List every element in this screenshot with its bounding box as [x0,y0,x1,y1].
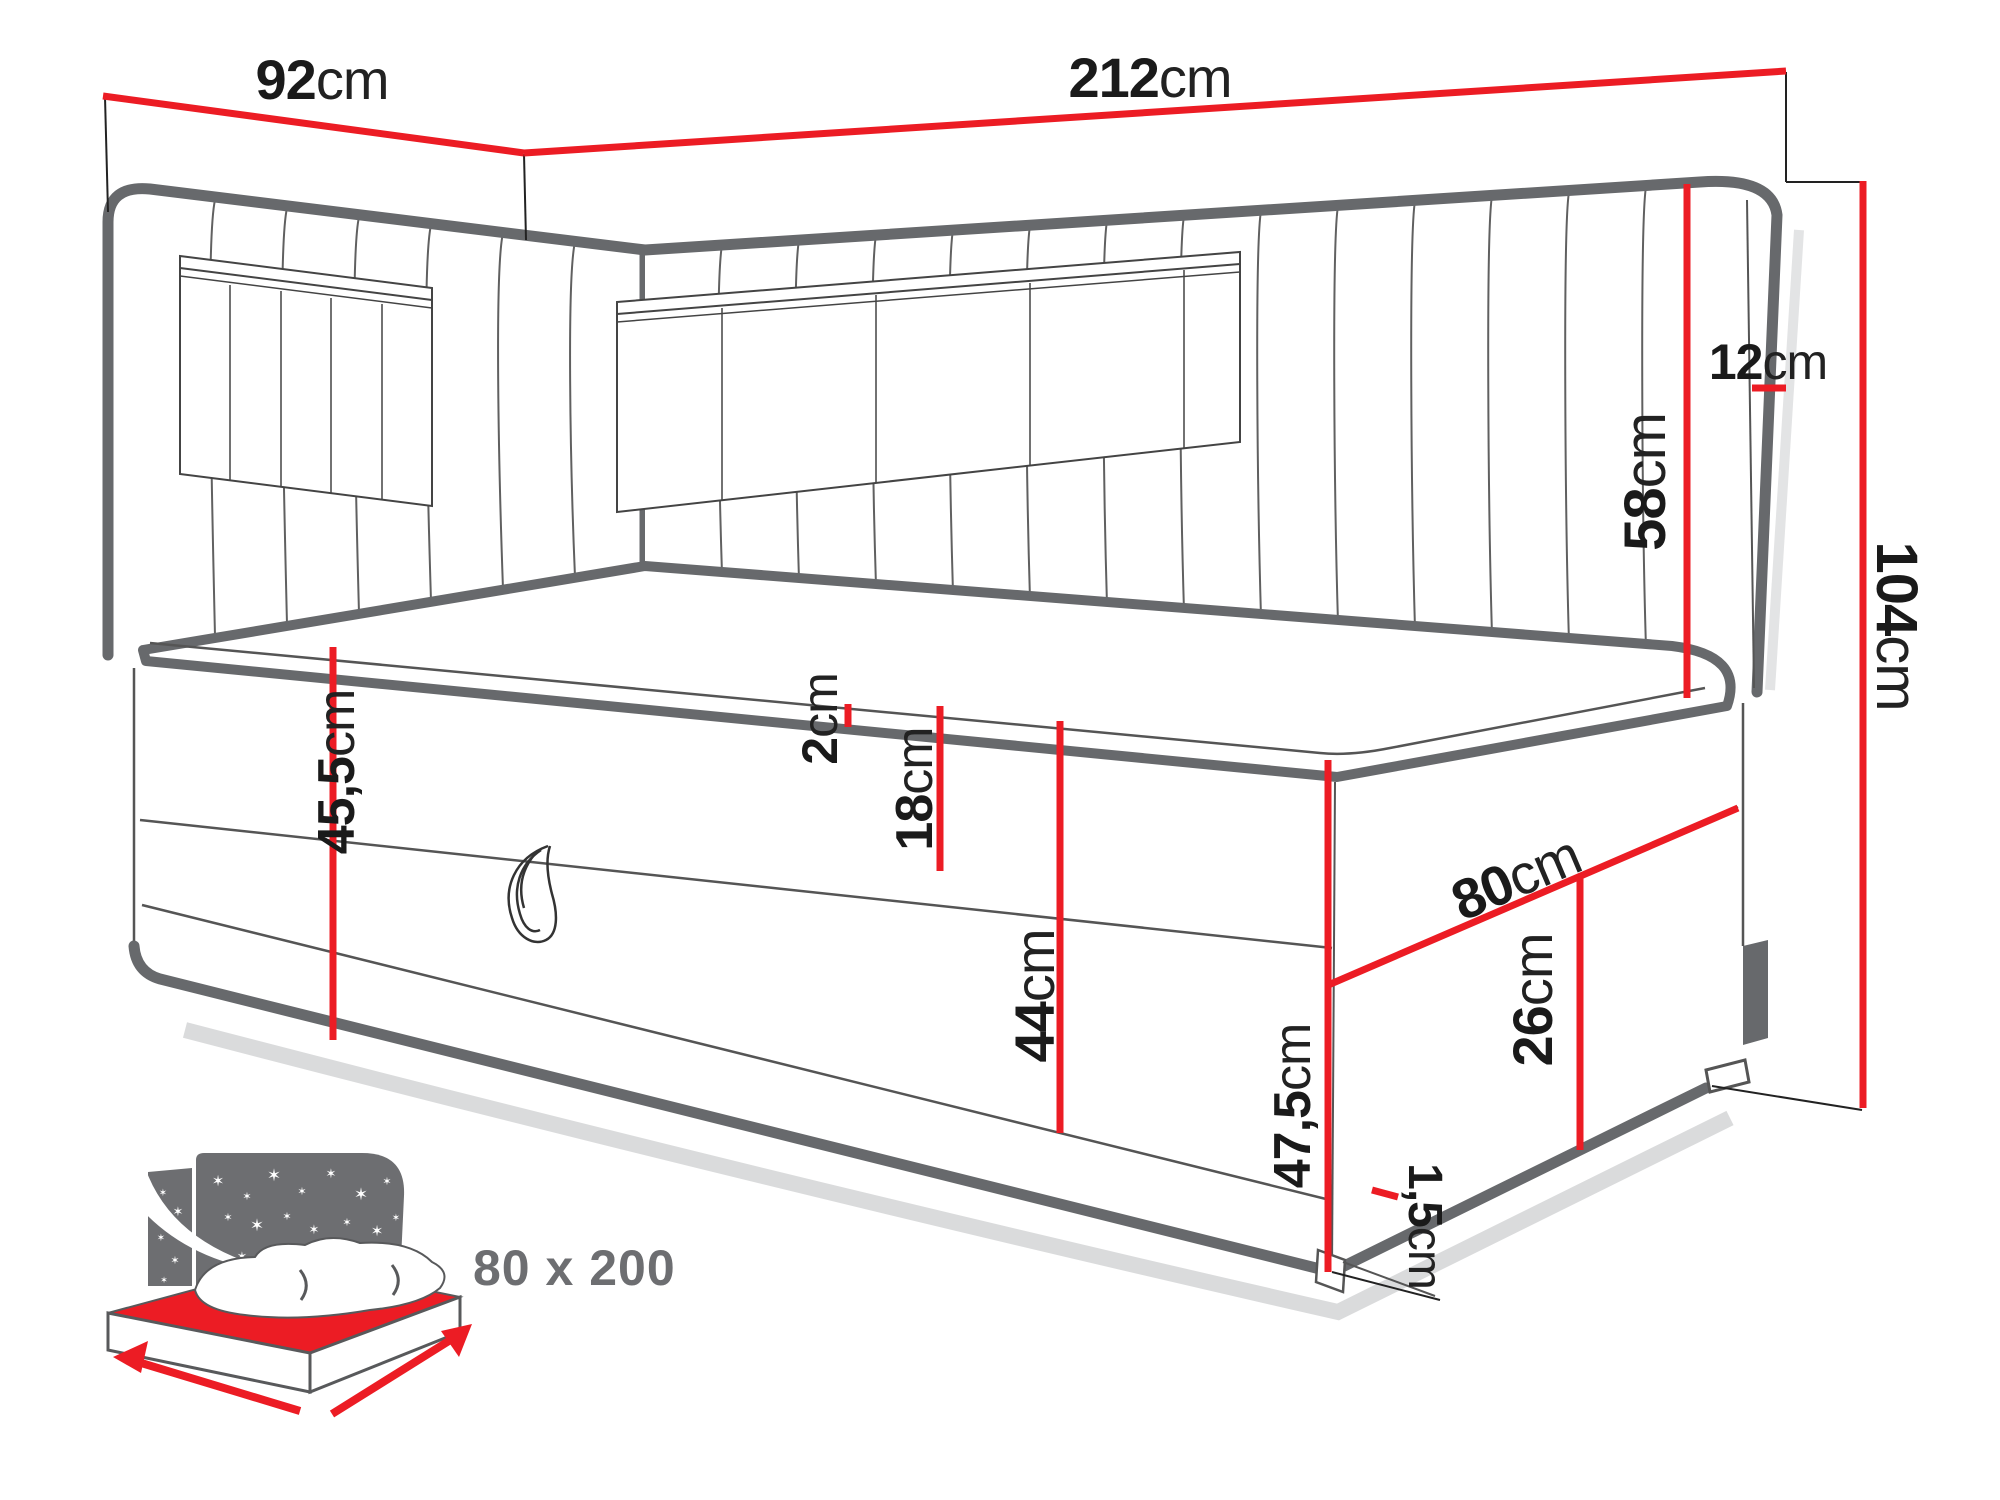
svg-text:✶: ✶ [212,1172,225,1190]
dim-value: 2 [792,738,848,765]
dim-unit: cm [1398,1227,1451,1289]
dim-label-1-5cm: 1,5cm [1400,1163,1448,1289]
dim-unit: cm [1613,413,1678,488]
bed-line-drawing: ✶✶ ✶✶ ✶✶ ✶✶ ✶✶ ✶✶ ✶✶ ✶✶ ✶✶ ✶✶ ✶✶ ✶✶ ✶✶ ✶… [0,0,2000,1500]
dim-label-12cm: 12cm [1709,337,1827,387]
dim-unit: cm [316,48,389,111]
dim-label-26cm: 26cm [1505,934,1561,1067]
svg-text:✶: ✶ [297,1185,306,1198]
dim-value: 44 [1003,1002,1066,1062]
svg-text:✶: ✶ [250,1216,264,1236]
dim-value: 18 [886,795,944,851]
svg-text:✶: ✶ [382,1175,391,1188]
dim-value: 47,5 [1264,1091,1322,1188]
svg-text:✶: ✶ [173,1205,184,1220]
svg-text:✶: ✶ [309,1223,320,1238]
dim-unit: cm [1501,934,1564,1007]
footprint-label: 80 x 200 [473,1243,676,1293]
bed-dimension-diagram: ✶✶ ✶✶ ✶✶ ✶✶ ✶✶ ✶✶ ✶✶ ✶✶ ✶✶ ✶✶ ✶✶ ✶✶ ✶✶ ✶… [0,0,2000,1500]
svg-text:✶: ✶ [354,1185,368,1205]
svg-text:✶: ✶ [208,1248,216,1259]
dim-value: 212 [1068,46,1158,109]
dim-label-104cm: 104cm [1867,541,1925,710]
svg-text:✶: ✶ [170,1254,179,1267]
sleeping-area-icon: ✶✶ ✶✶ ✶✶ ✶✶ ✶✶ ✶✶ ✶✶ ✶✶ ✶✶ ✶✶ ✶✶ ✶✶ ✶✶ ✶… [108,1153,472,1414]
svg-text:✶: ✶ [342,1216,351,1229]
dim-unit: cm [1762,334,1827,390]
dim-unit: cm [308,690,366,757]
dim-label-2cm: 2cm [795,673,845,764]
svg-text:✶: ✶ [159,1188,167,1199]
dim-unit: cm [1003,930,1066,1003]
dim-label-92cm: 92cm [256,52,389,108]
svg-text:✶: ✶ [371,1222,384,1240]
dim-label-45-5cm: 45,5cm [311,690,363,855]
svg-text:✶: ✶ [223,1211,232,1224]
svg-text:✶: ✶ [160,1276,168,1286]
svg-text:✶: ✶ [157,1233,165,1244]
dim-unit: cm [1264,1024,1322,1091]
dim-value: 45,5 [308,757,366,854]
dim-value: 1,5 [1398,1163,1451,1227]
dim-value: 26 [1501,1006,1564,1066]
dim-value: 104 [1864,541,1929,635]
dim-unit: cm [792,673,848,738]
dim-value: 92 [256,48,316,111]
svg-text:✶: ✶ [326,1167,337,1182]
svg-text:✶: ✶ [282,1210,291,1223]
right-leg [1743,940,1768,1045]
dim-label-58cm: 58cm [1617,413,1675,551]
dim-value: 58 [1613,488,1678,551]
dim-unit: cm [1864,635,1929,710]
dim-label-18cm: 18cm [889,727,941,850]
dim-label-44cm: 44cm [1007,930,1063,1063]
dim-unit: cm [886,727,944,794]
left-headboard-inset-shelf [180,256,432,506]
dim-value: 12 [1709,334,1763,390]
svg-text:✶: ✶ [392,1213,400,1224]
svg-text:✶: ✶ [242,1190,251,1203]
dim-label-212cm: 212cm [1068,50,1231,106]
svg-text:✶: ✶ [267,1166,281,1186]
dim-label-47-5cm: 47,5cm [1267,1024,1319,1189]
dim-unit: cm [1159,46,1232,109]
